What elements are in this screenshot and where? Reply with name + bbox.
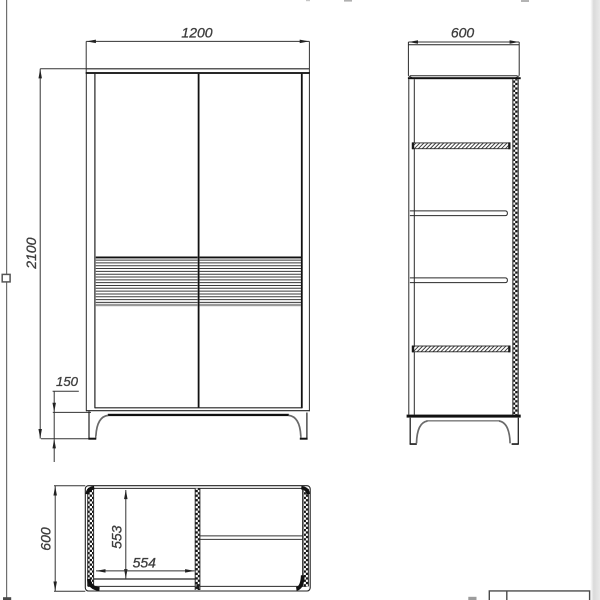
svg-text:600: 600: [451, 24, 475, 40]
svg-text:554: 554: [133, 554, 157, 570]
svg-text:2100: 2100: [23, 237, 39, 269]
svg-text:553: 553: [109, 525, 125, 549]
svg-text:600: 600: [37, 527, 53, 551]
svg-text:1200: 1200: [181, 24, 212, 40]
svg-text:150: 150: [56, 374, 79, 389]
